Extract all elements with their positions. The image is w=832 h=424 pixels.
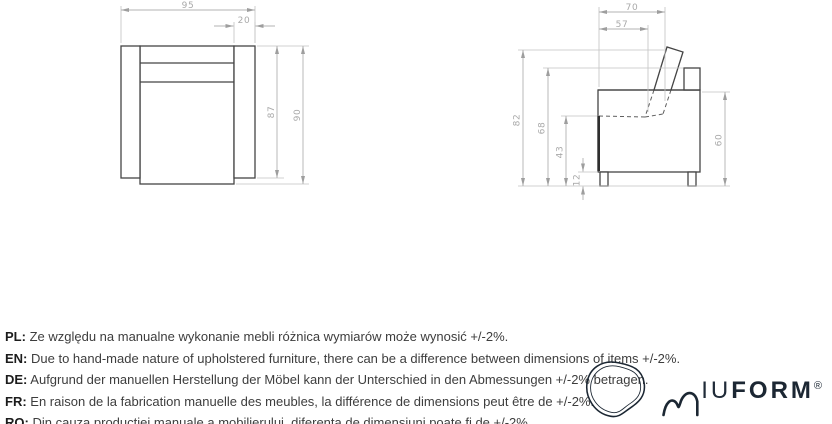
side-back-cushion (654, 47, 683, 90)
dim-label-total-depth: 70 (626, 3, 639, 13)
dim-label-overall-height: 82 (513, 114, 523, 127)
note-lang-label: RO: (5, 415, 29, 424)
tolerance-notes: PL: Ze względu na manualne wykonanie meb… (5, 326, 680, 424)
note-text: Ze względu na manualne wykonanie mebli r… (30, 329, 509, 344)
side-back-panel (684, 68, 700, 90)
logo-letters-form: FORM (731, 377, 814, 405)
dim-label-side-body-height: 60 (715, 134, 725, 147)
miuform-logo: IUFORM® (584, 360, 822, 422)
front-armrest-left (121, 46, 140, 178)
note-text: Aufgrund der manuellen Herstellung der M… (30, 372, 648, 387)
note-text: Din cauza producției manuale a mobilieru… (32, 415, 531, 424)
technical-drawings: 95 20 87 90 (0, 0, 832, 310)
logo-letters-iu: IU (701, 377, 731, 405)
front-armrest-right (234, 46, 255, 178)
logo-m-glyph (662, 371, 699, 417)
dim-label-seat-height: 43 (556, 146, 566, 159)
note-lang-label: PL: (5, 329, 26, 344)
side-leg-front (600, 172, 608, 186)
note-ro: RO: Din cauza producției manuale a mobil… (5, 412, 680, 424)
note-en: EN: Due to hand-made nature of upholster… (5, 348, 680, 370)
note-fr: FR: En raison de la fabrication manuelle… (5, 391, 680, 413)
dim-label-armrest-width: 20 (238, 16, 251, 26)
note-lang-label: FR: (5, 394, 27, 409)
spec-sheet: 95 20 87 90 (0, 0, 832, 424)
logo-wordmark: IUFORM® (701, 377, 822, 405)
front-view-drawing: 95 20 87 90 (121, 1, 309, 184)
registered-trademark-icon: ® (814, 380, 822, 392)
front-seat-body (140, 46, 234, 184)
dim-label-leg-height: 12 (573, 174, 583, 187)
note-lang-label: EN: (5, 351, 27, 366)
bean-icon (584, 360, 652, 422)
note-pl: PL: Ze względu na manualne wykonanie meb… (5, 326, 680, 348)
note-text: En raison de la fabrication manuelle des… (30, 394, 594, 409)
note-text: Due to hand-made nature of upholstered f… (31, 351, 680, 366)
dim-label-total-height: 90 (293, 109, 303, 122)
side-leg-back (688, 172, 696, 186)
side-view-drawing: 70 57 82 68 43 12 (513, 3, 731, 200)
dim-label-seat-depth: 57 (616, 20, 629, 30)
note-lang-label: DE: (5, 372, 27, 387)
dim-label-body-height: 87 (267, 106, 277, 119)
side-body (598, 90, 700, 172)
note-de: DE: Aufgrund der manuellen Herstellung d… (5, 369, 680, 391)
dim-label-total-width: 95 (182, 1, 195, 11)
dim-label-backrest-height: 68 (538, 122, 548, 135)
